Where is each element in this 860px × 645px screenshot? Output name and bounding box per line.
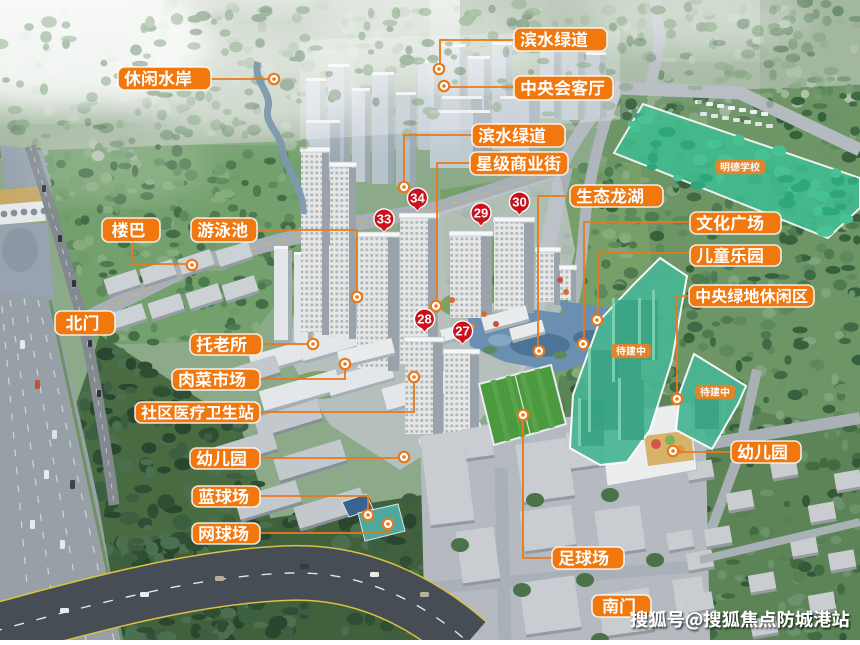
svg-text:29: 29 [474, 206, 488, 221]
svg-text:30: 30 [512, 195, 526, 210]
svg-text:34: 34 [410, 191, 425, 206]
svg-text:28: 28 [417, 312, 431, 327]
svg-text:27: 27 [455, 324, 469, 339]
svg-text:33: 33 [377, 212, 391, 227]
